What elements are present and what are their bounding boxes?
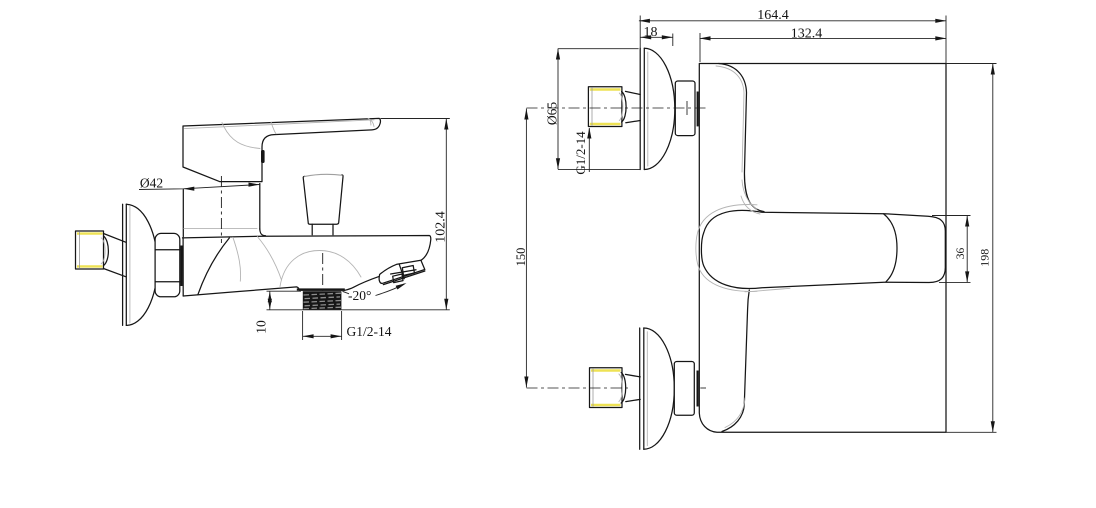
svg-text:18: 18 [644, 25, 658, 40]
svg-text:164.4: 164.4 [757, 8, 789, 23]
svg-text:36: 36 [955, 248, 967, 260]
svg-text:150: 150 [514, 248, 528, 267]
svg-text:198: 198 [978, 249, 992, 267]
svg-text:G1/2-14: G1/2-14 [573, 131, 588, 175]
svg-text:10: 10 [254, 320, 269, 334]
svg-text:132.4: 132.4 [791, 26, 823, 41]
svg-text:Ø42: Ø42 [140, 176, 163, 191]
svg-text:Ø65: Ø65 [545, 102, 560, 125]
svg-text:-20°: -20° [348, 288, 371, 303]
svg-text:G1/2-14: G1/2-14 [347, 324, 392, 339]
svg-text:102.4: 102.4 [434, 211, 449, 243]
